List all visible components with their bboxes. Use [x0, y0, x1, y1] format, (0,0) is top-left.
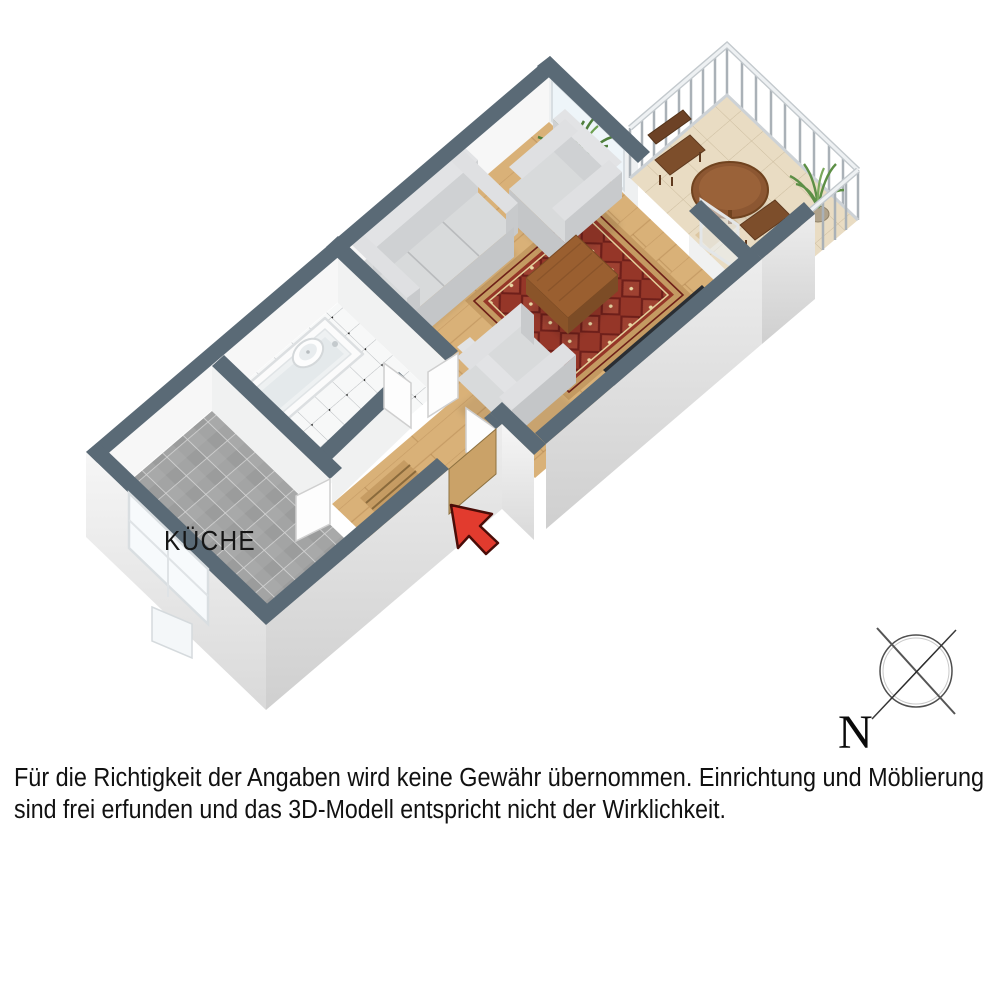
disclaimer: Für die Richtigkeit der Angaben wird kei… [14, 764, 984, 824]
bathtub-drain [332, 341, 338, 347]
disclaimer-line-1: Für die Richtigkeit der Angaben wird kei… [14, 764, 984, 792]
floor-plan-page: KÜCHE N Für die Richtigkeit der Angaben … [0, 0, 1000, 1000]
kitchen-label: KÜCHE [164, 525, 256, 556]
disclaimer-line-2: sind frei erfunden und das 3D-Modell ent… [14, 796, 726, 824]
floor-plan-rendering: KÜCHE N Für die Richtigkeit der Angaben … [0, 0, 1000, 1000]
compass-icon: N [838, 628, 956, 759]
compass-north-label: N [838, 706, 873, 759]
